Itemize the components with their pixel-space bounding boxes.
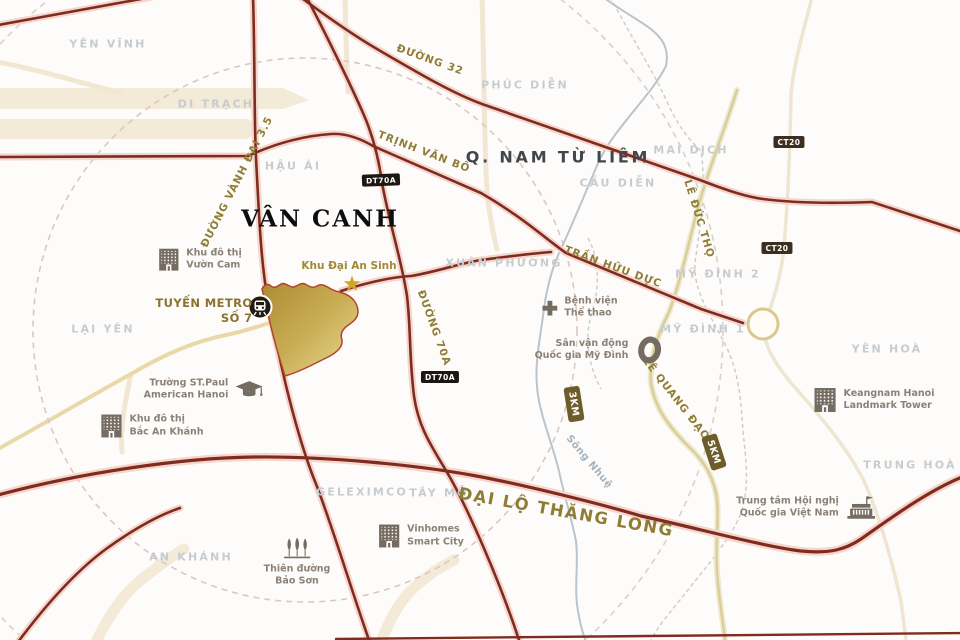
badge-dt70a-2: DT70A [421, 371, 459, 383]
location-map: YÊN VĨNHDI TRẠCHHẬU ÁIPHÚC DIỄNMAI DỊCHC… [0, 0, 960, 640]
road-label-le-quang-dao: LÊ QUANG ĐẠO [640, 355, 712, 443]
place-label-an-khanh: AN KHÁNH [149, 551, 233, 564]
landmark-label: Keangnam HanoiLandmark Tower [844, 388, 935, 413]
place-label-cau-dien: CẦU DIỄN [580, 177, 657, 190]
label-layer: YÊN VĨNHDI TRẠCHHẬU ÁIPHÚC DIỄNMAI DỊCHC… [0, 0, 960, 640]
place-label-hau-ai: HẬU ÁI [265, 160, 321, 173]
road-label-dai-lo-thang-long: ĐẠI LỘ THĂNG LONG [457, 484, 675, 541]
landmark-label: Sân vận độngQuốc gia Mỹ Đình [535, 338, 629, 363]
badge-ct20-2: CT20 [761, 242, 792, 254]
place-label-xuan-phuong: XUÂN PHƯƠNG [445, 257, 562, 270]
landmark-label: Khu Đại An Sinh [301, 260, 396, 274]
place-label-lai-yen: LẠI YÊN [71, 323, 135, 336]
landmark-st-paul: Trường ST.PaulAmerican Hanoi [144, 378, 263, 403]
landmark-label: Trường ST.PaulAmerican Hanoi [144, 378, 229, 403]
place-label-my-dinh-2: MỸ ĐÌNH 2 [675, 268, 761, 281]
landmark-label: Bệnh việnThể thao [564, 296, 617, 321]
building-icon [158, 248, 179, 272]
road-label-duong-32: ĐƯỜNG 32 [395, 42, 465, 77]
place-label-yen-hoa: YÊN HOÀ [852, 343, 923, 356]
landmark-label: Thiên đườngBảo Sơn [264, 564, 331, 589]
badge-km-3: 3KM [563, 385, 584, 422]
landmark-san-van-dong: Sân vận độngQuốc gia Mỹ Đình [535, 335, 664, 365]
landmark-vuon-cam: Khu đô thịVườn Cam [158, 248, 241, 273]
place-label-trung-hoa: TRUNG HOÀ [863, 459, 957, 472]
landmark-label: VinhomesSmart City [407, 524, 464, 549]
trees-icon [283, 538, 310, 561]
badge-dt70a-1: DT70A [362, 173, 400, 186]
stadium-icon [635, 335, 663, 365]
badge-ct20-1: CT20 [773, 136, 804, 148]
place-label-di-trach: DI TRẠCH [178, 98, 254, 111]
landmark-label: Khu đô thịVườn Cam [186, 248, 241, 273]
road-label-duong-70a: ĐƯỜNG 70A [415, 289, 453, 368]
landmark-dai-an-sinh: Khu Đại An Sinh [301, 260, 396, 274]
road-label-song-nhue: Sông Nhuệ [564, 433, 615, 490]
landmark-tuyen-metro: TUYẾN METROSỐ 7 [155, 296, 252, 326]
road-label-trinh-van-bo: TRỊNH VĂN BÔ [376, 129, 472, 175]
landmark-label: Trung tâm Hội nghịQuốc gia Việt Nam [736, 496, 839, 521]
place-label-mai-dich: MAI DỊCH [653, 144, 728, 157]
landmark-label: TUYẾN METROSỐ 7 [155, 296, 252, 326]
landmark-label: Khu đô thịBắc An Khánh [129, 414, 203, 439]
badge-km-5: 5KM [701, 433, 727, 471]
landmark-bac-an-khanh: Khu đô thịBắc An Khánh [100, 414, 203, 439]
landmark-keangnam: Keangnam HanoiLandmark Tower [814, 387, 935, 413]
gradcap-icon [235, 381, 262, 400]
place-label-van-canh: VÂN CANH [241, 206, 399, 233]
road-label-tran-huu-duc: TRẦN HỮU DỰC [563, 244, 664, 290]
building-icon [814, 387, 837, 413]
landmark-hoi-nghi: Trung tâm Hội nghịQuốc gia Việt Nam [736, 496, 876, 521]
place-label-my-dinh-1: MỸ ĐÌNH 1 [660, 323, 746, 336]
place-label-geleximco: GELEXIMCO [316, 486, 408, 499]
landmark-benh-vien: Bệnh việnThể thao [542, 296, 617, 321]
cross-icon [542, 301, 557, 316]
landmark-vinhomes: VinhomesSmart City [378, 524, 464, 549]
place-label-yen-vinh: YÊN VĨNH [69, 38, 146, 51]
convention-icon [846, 496, 876, 520]
building-icon [100, 414, 122, 439]
landmark-bao-son: Thiên đườngBảo Sơn [264, 538, 331, 589]
place-label-q-nam-tu-liem: Q. NAM TỪ LIÊM [466, 148, 651, 167]
building-icon [378, 524, 400, 549]
place-label-phuc-dien: PHÚC DIỄN [481, 79, 569, 92]
road-label-le-duc-tho: LÊ ĐỨC THỌ [681, 178, 716, 259]
